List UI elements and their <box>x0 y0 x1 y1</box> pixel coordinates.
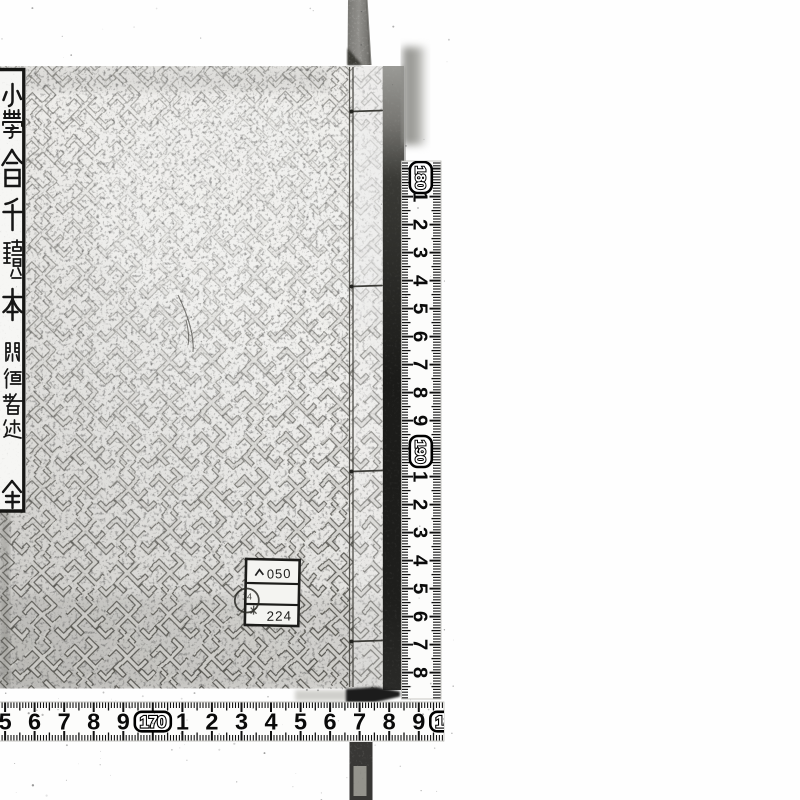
svg-text:180: 180 <box>411 166 428 190</box>
svg-text:6: 6 <box>409 331 432 342</box>
svg-text:2: 2 <box>409 499 432 510</box>
svg-text:5: 5 <box>409 583 432 594</box>
svg-text:1: 1 <box>409 191 432 202</box>
svg-text:6: 6 <box>324 709 337 735</box>
svg-text:7: 7 <box>58 709 71 735</box>
svg-text:4: 4 <box>409 275 432 287</box>
svg-text:4: 4 <box>409 555 432 567</box>
svg-text:6: 6 <box>28 709 41 735</box>
svg-text:2: 2 <box>409 219 432 230</box>
svg-text:8: 8 <box>383 709 396 735</box>
svg-text:224: 224 <box>266 609 292 624</box>
svg-text:3: 3 <box>235 709 248 735</box>
svg-text:7: 7 <box>409 359 432 370</box>
svg-text:9: 9 <box>117 709 130 735</box>
svg-text:7: 7 <box>409 639 432 650</box>
svg-text:5: 5 <box>0 709 12 735</box>
svg-text:5: 5 <box>409 303 432 314</box>
svg-text:6: 6 <box>409 611 432 622</box>
svg-text:1: 1 <box>176 709 189 735</box>
svg-text:4: 4 <box>264 709 277 735</box>
svg-text:190: 190 <box>411 440 428 464</box>
svg-text:2: 2 <box>205 709 218 735</box>
svg-text:3: 3 <box>409 247 432 258</box>
svg-text:8: 8 <box>409 667 432 678</box>
svg-text:5: 5 <box>294 709 307 735</box>
svg-text:1: 1 <box>409 471 432 482</box>
svg-text:050: 050 <box>267 566 292 582</box>
svg-text:8: 8 <box>87 709 100 735</box>
svg-text:7: 7 <box>353 709 366 735</box>
svg-text:9: 9 <box>412 709 425 735</box>
svg-text:3: 3 <box>409 527 432 538</box>
svg-text:8: 8 <box>409 387 432 398</box>
svg-text:9: 9 <box>409 415 432 426</box>
svg-text:14: 14 <box>242 591 252 601</box>
